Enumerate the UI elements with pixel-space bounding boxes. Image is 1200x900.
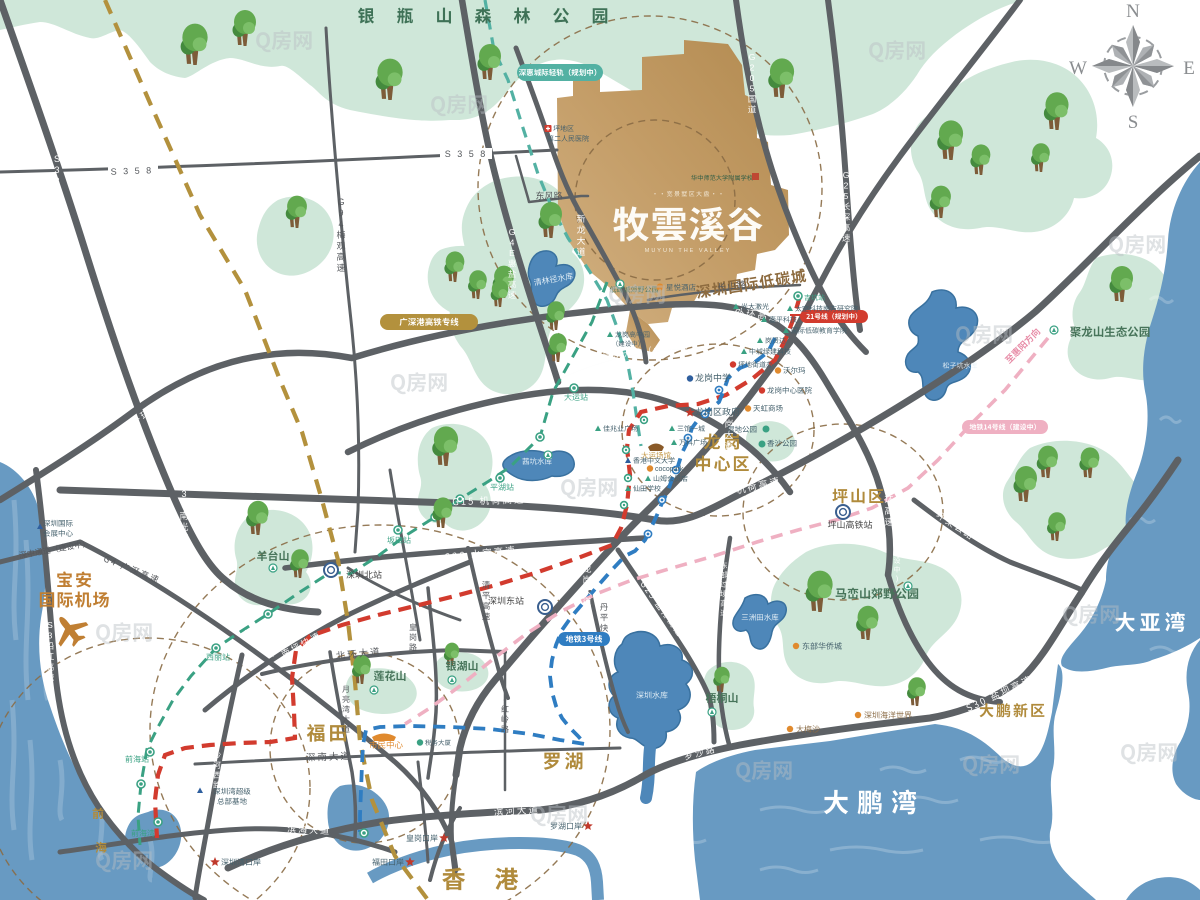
svg-text:G: G [749,52,756,62]
svg-text:3: 3 [181,500,186,510]
svg-text:5: 5 [844,191,849,201]
svg-text:S: S [47,620,53,630]
svg-text:S 3 5 8: S 3 5 8 [110,165,153,176]
svg-text:E: E [509,248,515,258]
svg-text:3: 3 [54,165,59,175]
svg-text:E: E [1183,58,1195,79]
svg-text:S 3 5 8: S 3 5 8 [445,149,488,159]
svg-text:5: 5 [750,84,755,94]
svg-text:S: S [54,154,60,164]
svg-text:9: 9 [338,208,343,218]
svg-text:): ) [896,576,898,583]
svg-text:0: 0 [750,73,755,83]
svg-text:G: G [337,197,344,207]
svg-text:G: G [843,170,850,180]
svg-text:4: 4 [510,238,515,248]
svg-text:2: 2 [750,63,755,73]
svg-text:cocopark: cocopark [655,466,684,473]
svg-text:4: 4 [338,219,343,229]
svg-text:G: G [509,227,516,237]
svg-text:3: 3 [181,489,186,499]
svg-text:3: 3 [48,631,53,641]
svg-text:MUYUN THE VALLEY: MUYUN THE VALLEY [645,248,732,254]
svg-text:S: S [181,478,187,488]
svg-text:3: 3 [54,176,59,186]
svg-text:S: S [1128,112,1139,133]
svg-text:N: N [1126,1,1140,22]
svg-text:W: W [1069,58,1087,79]
svg-text:2: 2 [844,181,849,191]
